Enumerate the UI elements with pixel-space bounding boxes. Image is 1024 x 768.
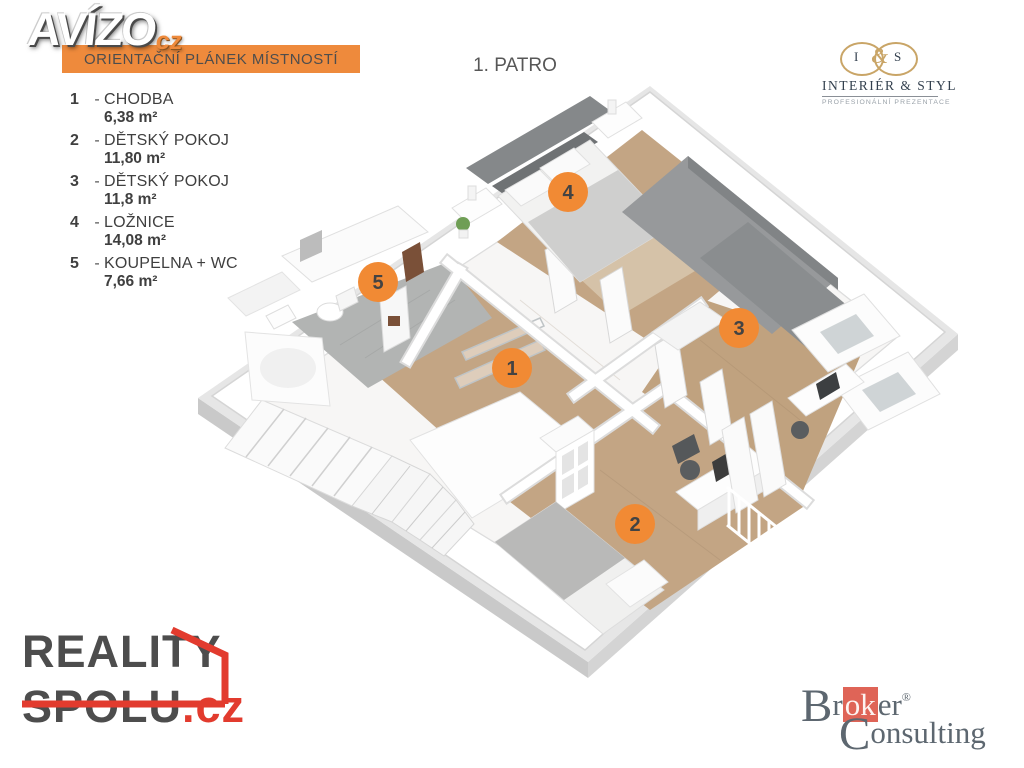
monogram-s: S — [894, 49, 901, 65]
legend-dash: - — [90, 254, 104, 273]
interier-styl-name: INTERIÉR & STYL — [822, 78, 938, 97]
room-marker: 5 — [358, 262, 398, 302]
legend-item: 1 - CHODBA 6,38 m² — [70, 90, 238, 127]
room-marker: 2 — [615, 504, 655, 544]
broker-consulting-logo: Broker® Consulting — [795, 682, 1015, 750]
legend-room-name: DĚTSKÝ POKOJ — [104, 172, 229, 191]
legend-number: 3 — [70, 172, 90, 191]
interier-styl-tagline: PROFESIONÁLNÍ PREZENTACE — [822, 99, 938, 106]
room-legend: 1 - CHODBA 6,38 m² 2 - DĚTSKÝ POKOJ 11,8… — [70, 90, 238, 295]
legend-item: 4 - LOŽNICE 14,08 m² — [70, 213, 238, 250]
room-marker: 4 — [548, 172, 588, 212]
flyer-page: 1 2 3 4 5 ORIENTAČNÍ PLÁNEK MÍSTNOSTÍ AV… — [0, 0, 1024, 768]
legend-room-area: 11,80 m² — [104, 150, 238, 168]
interier-styl-logo: I & S INTERIÉR & STYL PROFESIONÁLNÍ PREZ… — [822, 40, 938, 106]
legend-room-area: 6,38 m² — [104, 109, 238, 127]
legend-room-name: KOUPELNA + WC — [104, 254, 238, 273]
legend-number: 2 — [70, 131, 90, 150]
registered-mark: ® — [902, 690, 911, 704]
broker-b-cap: B — [801, 680, 832, 732]
legend-room-area: 14,08 m² — [104, 232, 238, 250]
legend-number: 4 — [70, 213, 90, 232]
broker-line2: Consulting — [839, 718, 1015, 750]
avizo-logo-text: AVÍZO — [25, 3, 158, 55]
room-marker-number: 1 — [506, 358, 517, 380]
room-marker: 3 — [719, 308, 759, 348]
monogram-ampersand: & — [871, 43, 888, 69]
legend-dash: - — [90, 131, 104, 150]
legend-number: 5 — [70, 254, 90, 273]
room-marker-number: 2 — [629, 514, 640, 536]
legend-room-name: CHODBA — [104, 90, 174, 109]
room-marker-number: 5 — [372, 272, 383, 294]
avizo-logo: AVÍZOcz — [25, 2, 186, 56]
legend-room-name: LOŽNICE — [104, 213, 175, 232]
legend-room-area: 7,66 m² — [104, 273, 238, 291]
legend-item: 5 - KOUPELNA + WC 7,66 m² — [70, 254, 238, 291]
legend-room-name: DĚTSKÝ POKOJ — [104, 131, 229, 150]
legend-room-area: 11,8 m² — [104, 191, 238, 209]
room-marker: 1 — [492, 348, 532, 388]
legend-item: 2 - DĚTSKÝ POKOJ 11,80 m² — [70, 131, 238, 168]
floor-title: 1. PATRO — [445, 55, 585, 77]
room-marker-number: 3 — [733, 318, 744, 340]
monogram-i: I — [854, 49, 858, 65]
avizo-logo-suffix: cz — [154, 27, 183, 55]
consulting-c-cap: C — [839, 708, 870, 760]
legend-dash: - — [90, 90, 104, 109]
room-marker-number: 4 — [562, 182, 574, 204]
legend-dash: - — [90, 172, 104, 191]
legend-dash: - — [90, 213, 104, 232]
consulting-rest: onsulting — [870, 715, 985, 750]
reality-spolu-logo: REALITY SPOLU.cz — [22, 628, 262, 731]
reality-roof-icon — [22, 628, 262, 758]
interier-styl-monogram: I & S — [822, 40, 938, 78]
legend-item: 3 - DĚTSKÝ POKOJ 11,8 m² — [70, 172, 238, 209]
legend-number: 1 — [70, 90, 90, 109]
